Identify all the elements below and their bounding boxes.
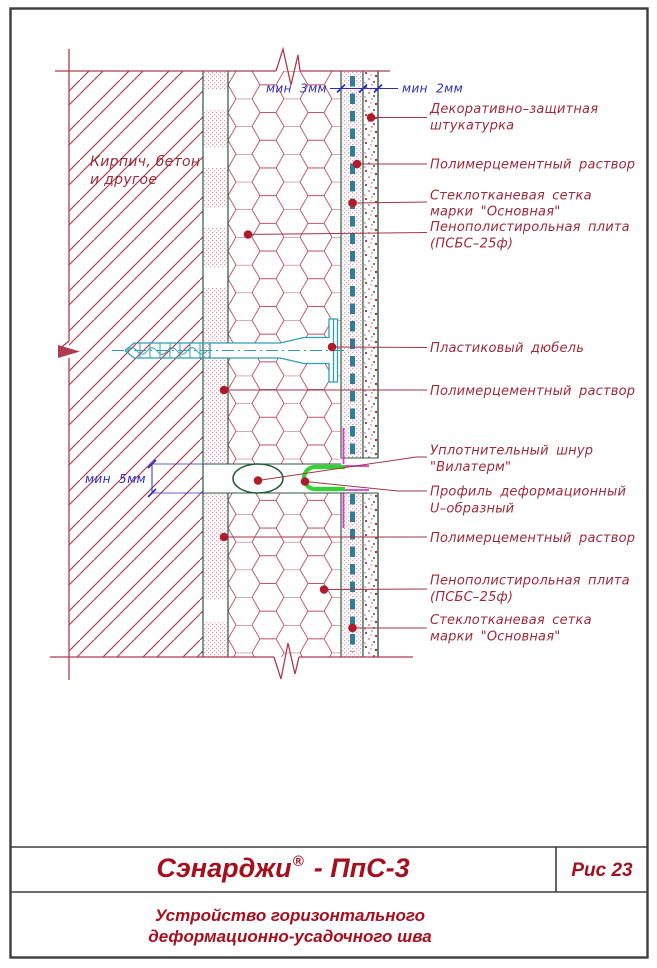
product-title: Сэнарджи®- ПпС-3 [156, 853, 409, 883]
label-sealing-cord-line1: Уплотнительный шнур [430, 444, 593, 459]
label-polymer-mortar-bottom: Полимерцементный раствор [430, 531, 635, 546]
label-glass-mesh-bottom-line2: марки "Основная" [430, 630, 560, 645]
caption-line1: Устройство горизонтального [155, 906, 425, 925]
wall-material-label-line2: и другое [90, 172, 157, 188]
label-foam-plate-top-line2: (ПСБС–25ф) [430, 237, 513, 252]
product-code: - ПпС-3 [314, 853, 410, 883]
drawing-sheet: мин 3мм мин 2мм мин 5мм Кирпич, [0, 0, 657, 968]
dimension-plaster-min: мин 2мм [402, 82, 463, 96]
wall-material-label-line1: Кирпич, бетон [90, 154, 200, 170]
label-glass-mesh-bottom-line1: Стеклотканевая сетка [430, 613, 592, 628]
dimension-joint-min: мин 5мм [85, 472, 146, 486]
title-block: Сэнарджи®- ПпС-3 Рис 23 Устройство гориз… [148, 853, 633, 946]
label-plastic-dowel: Пластиковый дюбель [430, 341, 584, 356]
caption-line2: деформационно-усадочного шва [148, 927, 431, 946]
leader-foam-plate-bottom [324, 589, 427, 590]
registered-mark: ® [293, 853, 305, 870]
figure-number: Рис 23 [571, 860, 633, 881]
plaster-layer [363, 71, 378, 657]
label-deformation-profile-line1: Профиль деформационный [430, 485, 626, 500]
label-foam-plate-top-line1: Пенополистирольная плита [430, 220, 630, 235]
label-glass-mesh-top-line1: Стеклотканевая сетка [430, 189, 592, 204]
label-polymer-mortar-top: Полимерцементный раствор [430, 158, 635, 173]
leader-plastic-dowel [332, 347, 427, 348]
label-sealing-cord-line2: "Вилатерм" [430, 460, 511, 475]
label-polymer-mortar-mid: Полимерцементный раствор [430, 384, 635, 399]
label-foam-plate-bottom-line2: (ПСБС–25ф) [430, 590, 513, 605]
label-deformation-profile-line2: U–образный [430, 502, 514, 517]
label-decorative-plaster-line2: штукатурка [430, 119, 514, 134]
wall-section-figure: мин 3мм мин 2мм мин 5мм Кирпич, [0, 0, 657, 968]
brand-name: Сэнарджи [156, 853, 292, 883]
label-decorative-plaster-line1: Декоративно–защитная [429, 102, 598, 117]
label-foam-plate-bottom-line1: Пенополистирольная плита [430, 574, 630, 589]
label-glass-mesh-top-line2: марки "Основная" [430, 205, 560, 220]
dimension-mortar-min: мин 3мм [266, 82, 327, 96]
